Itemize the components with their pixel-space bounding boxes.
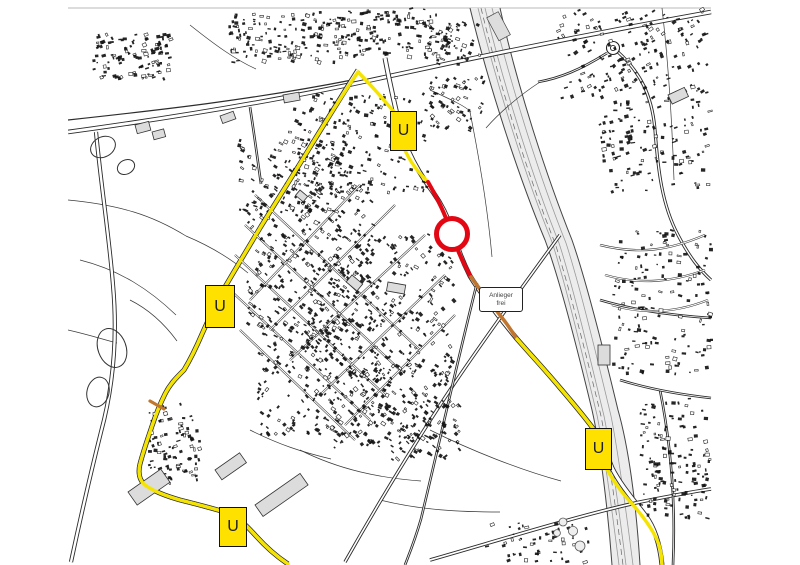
building xyxy=(189,471,193,474)
building xyxy=(338,119,341,122)
building xyxy=(614,285,617,287)
building xyxy=(174,445,178,448)
building xyxy=(677,261,681,264)
building xyxy=(410,267,413,271)
building xyxy=(445,379,449,383)
building xyxy=(343,174,348,178)
building xyxy=(362,389,365,392)
building xyxy=(414,187,418,191)
building xyxy=(380,106,383,109)
building xyxy=(152,61,155,64)
building xyxy=(652,144,656,148)
building xyxy=(602,159,606,162)
building xyxy=(369,261,373,265)
building xyxy=(438,323,441,326)
building xyxy=(356,190,358,192)
building xyxy=(330,277,334,281)
building xyxy=(338,279,340,281)
building xyxy=(674,479,676,482)
building xyxy=(422,393,426,397)
building xyxy=(641,159,644,161)
building xyxy=(266,414,270,418)
building xyxy=(518,522,520,524)
building xyxy=(253,205,258,208)
building xyxy=(164,433,168,436)
building xyxy=(429,37,432,39)
building xyxy=(349,390,354,394)
building xyxy=(147,63,150,66)
building xyxy=(595,26,597,29)
building xyxy=(144,52,149,56)
building xyxy=(293,316,296,319)
building xyxy=(400,273,402,275)
building xyxy=(252,44,255,45)
building xyxy=(268,40,272,44)
building xyxy=(642,295,645,297)
building xyxy=(700,499,703,501)
building xyxy=(670,453,674,455)
building xyxy=(697,283,700,285)
building xyxy=(379,377,382,381)
building xyxy=(705,63,708,66)
building xyxy=(298,321,300,323)
building xyxy=(430,114,435,119)
building xyxy=(430,81,433,84)
building xyxy=(697,87,701,91)
building xyxy=(648,297,650,300)
building xyxy=(367,25,370,28)
building xyxy=(431,95,435,97)
base-map xyxy=(0,0,800,565)
building xyxy=(384,292,388,296)
building xyxy=(409,387,414,391)
building xyxy=(279,21,282,24)
building xyxy=(612,294,615,296)
building xyxy=(395,457,399,461)
building xyxy=(393,188,395,191)
building xyxy=(522,524,524,527)
building xyxy=(657,488,659,492)
building xyxy=(430,297,433,301)
building xyxy=(278,58,281,60)
building xyxy=(308,130,311,133)
building xyxy=(163,458,167,460)
building xyxy=(702,476,704,478)
building xyxy=(634,278,636,280)
building xyxy=(361,95,364,97)
building xyxy=(389,438,392,441)
building xyxy=(412,416,416,420)
building xyxy=(365,390,369,394)
building xyxy=(679,159,683,163)
building xyxy=(387,21,390,23)
building xyxy=(129,72,133,75)
building xyxy=(698,273,701,275)
building xyxy=(356,37,360,41)
building xyxy=(315,118,318,121)
building xyxy=(671,183,675,185)
building xyxy=(613,157,616,160)
building xyxy=(674,338,676,341)
building xyxy=(615,183,618,186)
building xyxy=(704,473,708,476)
building xyxy=(609,169,613,173)
building xyxy=(703,132,707,136)
building xyxy=(353,32,357,35)
building xyxy=(294,181,297,185)
building xyxy=(694,499,697,502)
building xyxy=(371,388,376,392)
large-building xyxy=(283,92,300,103)
building xyxy=(361,214,365,218)
building xyxy=(315,93,320,97)
building xyxy=(361,200,365,204)
building xyxy=(295,45,297,47)
building xyxy=(157,442,159,445)
building xyxy=(312,282,315,285)
building xyxy=(657,105,662,108)
building xyxy=(663,123,666,127)
building xyxy=(196,478,198,481)
building xyxy=(283,243,287,247)
building xyxy=(263,48,267,52)
building xyxy=(190,445,194,448)
building xyxy=(561,34,564,38)
building xyxy=(246,43,249,46)
building xyxy=(480,110,483,114)
building xyxy=(365,248,369,253)
building xyxy=(333,439,337,443)
building xyxy=(622,63,626,66)
building xyxy=(281,16,284,17)
building xyxy=(335,189,338,193)
building xyxy=(621,256,623,259)
building xyxy=(336,41,339,43)
building xyxy=(384,302,388,306)
building xyxy=(302,36,305,39)
building xyxy=(434,364,439,368)
building xyxy=(705,477,709,481)
building xyxy=(643,317,647,320)
building xyxy=(706,449,709,452)
building xyxy=(386,14,390,17)
building xyxy=(352,20,356,23)
building xyxy=(669,462,673,464)
building xyxy=(562,542,565,545)
building xyxy=(368,322,371,326)
building xyxy=(343,41,347,44)
building xyxy=(313,277,317,281)
building xyxy=(662,266,665,269)
building xyxy=(346,132,348,135)
building xyxy=(478,106,481,109)
building xyxy=(431,30,433,31)
building xyxy=(561,538,564,541)
building xyxy=(456,96,460,101)
building xyxy=(451,283,455,287)
building xyxy=(409,310,414,315)
building xyxy=(297,411,301,415)
building xyxy=(252,13,255,16)
building xyxy=(683,253,687,256)
building xyxy=(376,353,379,356)
road-casing xyxy=(538,53,607,82)
building xyxy=(407,363,411,367)
building xyxy=(261,392,264,395)
building xyxy=(686,464,688,467)
building xyxy=(319,11,322,14)
building xyxy=(312,12,315,16)
building xyxy=(697,62,700,66)
building xyxy=(413,28,416,30)
building xyxy=(194,468,197,470)
building xyxy=(333,41,335,44)
detour-sign-right: U xyxy=(585,428,612,470)
road-casing xyxy=(71,132,115,562)
building xyxy=(154,467,156,468)
building xyxy=(338,269,341,272)
building xyxy=(348,346,351,349)
building xyxy=(165,52,169,55)
building xyxy=(333,237,337,240)
building xyxy=(322,385,324,387)
building xyxy=(686,471,689,474)
map-stage: U U U U Anlieger frei xyxy=(0,0,800,565)
building xyxy=(687,299,691,302)
building xyxy=(301,257,305,261)
building xyxy=(343,382,345,385)
building xyxy=(378,445,380,447)
building xyxy=(632,81,635,83)
building xyxy=(346,54,348,57)
building xyxy=(688,438,693,441)
building xyxy=(655,157,657,159)
building xyxy=(449,25,452,28)
building xyxy=(432,36,437,38)
building xyxy=(399,157,403,159)
building xyxy=(373,30,376,32)
building xyxy=(290,53,292,56)
building xyxy=(106,46,108,49)
building xyxy=(378,411,380,414)
building xyxy=(231,20,234,23)
building xyxy=(278,306,282,309)
building xyxy=(337,293,341,297)
building xyxy=(408,12,410,14)
building xyxy=(639,369,644,373)
building xyxy=(664,232,668,235)
building xyxy=(319,183,322,185)
building xyxy=(163,452,167,455)
building xyxy=(348,38,351,40)
building xyxy=(435,40,439,43)
building xyxy=(291,41,294,45)
building xyxy=(380,14,383,16)
building xyxy=(290,59,295,63)
building xyxy=(646,101,649,103)
building xyxy=(377,440,381,444)
building xyxy=(294,50,297,54)
building xyxy=(253,20,255,22)
building xyxy=(180,463,182,465)
building xyxy=(316,162,318,164)
building xyxy=(312,269,315,273)
building xyxy=(661,274,664,278)
building xyxy=(323,101,326,105)
building xyxy=(699,319,701,322)
building xyxy=(441,92,444,95)
building xyxy=(342,134,346,138)
building xyxy=(620,89,623,92)
building xyxy=(647,513,650,516)
building xyxy=(573,12,576,16)
building xyxy=(705,496,708,500)
building xyxy=(587,49,592,53)
building xyxy=(384,39,386,42)
building xyxy=(324,357,329,362)
building xyxy=(432,53,435,56)
large-building xyxy=(152,129,166,140)
building xyxy=(394,251,398,254)
building xyxy=(375,16,377,19)
street-inner xyxy=(270,205,395,330)
building xyxy=(646,39,649,43)
building xyxy=(687,64,692,69)
detour-sign-right-label: U xyxy=(593,440,605,458)
building xyxy=(301,142,306,147)
building xyxy=(260,15,264,17)
building xyxy=(556,29,560,32)
building xyxy=(283,140,288,144)
building xyxy=(339,51,341,54)
building xyxy=(677,255,681,257)
building xyxy=(412,437,414,439)
building xyxy=(384,116,387,118)
road-inner xyxy=(538,53,607,82)
building xyxy=(265,32,267,35)
building xyxy=(340,190,344,192)
building xyxy=(142,43,147,48)
building xyxy=(629,87,632,89)
building xyxy=(651,244,653,246)
building xyxy=(600,136,602,138)
building xyxy=(330,314,334,317)
building xyxy=(620,147,624,151)
building xyxy=(654,487,657,489)
building xyxy=(375,42,378,44)
building xyxy=(96,35,101,38)
building xyxy=(456,117,461,122)
building xyxy=(363,99,366,103)
building xyxy=(392,271,397,276)
building xyxy=(406,46,409,48)
building xyxy=(280,201,285,205)
building xyxy=(441,39,444,42)
building xyxy=(398,265,401,268)
building xyxy=(338,215,342,219)
building xyxy=(692,469,697,472)
detour-sign-bottom-label: U xyxy=(227,518,239,536)
building xyxy=(640,264,642,268)
road-casing xyxy=(68,80,352,120)
building xyxy=(577,23,580,26)
building xyxy=(614,87,618,91)
building xyxy=(626,18,631,22)
building xyxy=(358,230,361,232)
building xyxy=(408,351,411,355)
building xyxy=(622,279,626,283)
building xyxy=(382,373,385,376)
building xyxy=(434,401,439,405)
building xyxy=(355,212,358,215)
building xyxy=(428,245,432,249)
building xyxy=(308,228,311,231)
building xyxy=(330,98,333,100)
building xyxy=(689,161,692,164)
building xyxy=(700,89,705,94)
building xyxy=(572,537,574,539)
building xyxy=(697,245,699,248)
building xyxy=(678,481,682,483)
building xyxy=(638,324,640,328)
building xyxy=(250,225,253,229)
building xyxy=(417,363,422,368)
building xyxy=(691,116,694,119)
building xyxy=(366,443,369,446)
building xyxy=(236,36,239,39)
building xyxy=(448,365,452,369)
building xyxy=(430,319,433,322)
building xyxy=(395,15,398,18)
building xyxy=(696,45,699,48)
building xyxy=(280,284,285,289)
building xyxy=(666,437,671,441)
building xyxy=(325,349,329,353)
building xyxy=(533,538,537,540)
building xyxy=(693,426,697,429)
building xyxy=(107,67,110,70)
building xyxy=(312,162,316,166)
building xyxy=(261,179,264,182)
building xyxy=(264,273,267,276)
building xyxy=(402,46,404,48)
building xyxy=(337,234,341,237)
building xyxy=(681,329,684,332)
detour-sign-bottom: U xyxy=(219,507,247,547)
large-building xyxy=(296,190,308,202)
building xyxy=(705,468,707,471)
building xyxy=(504,542,507,545)
building xyxy=(678,455,682,458)
building xyxy=(637,313,639,317)
road-casing xyxy=(600,300,711,318)
building xyxy=(194,448,196,452)
building xyxy=(443,382,447,386)
building xyxy=(618,315,620,318)
building xyxy=(659,232,661,234)
building xyxy=(506,559,511,563)
building xyxy=(168,418,172,420)
building xyxy=(411,17,414,20)
building xyxy=(335,44,338,45)
building xyxy=(168,446,171,448)
building xyxy=(376,296,380,300)
building xyxy=(370,413,373,415)
building xyxy=(375,324,378,327)
building xyxy=(628,69,631,72)
building xyxy=(691,25,695,28)
building xyxy=(273,164,278,168)
